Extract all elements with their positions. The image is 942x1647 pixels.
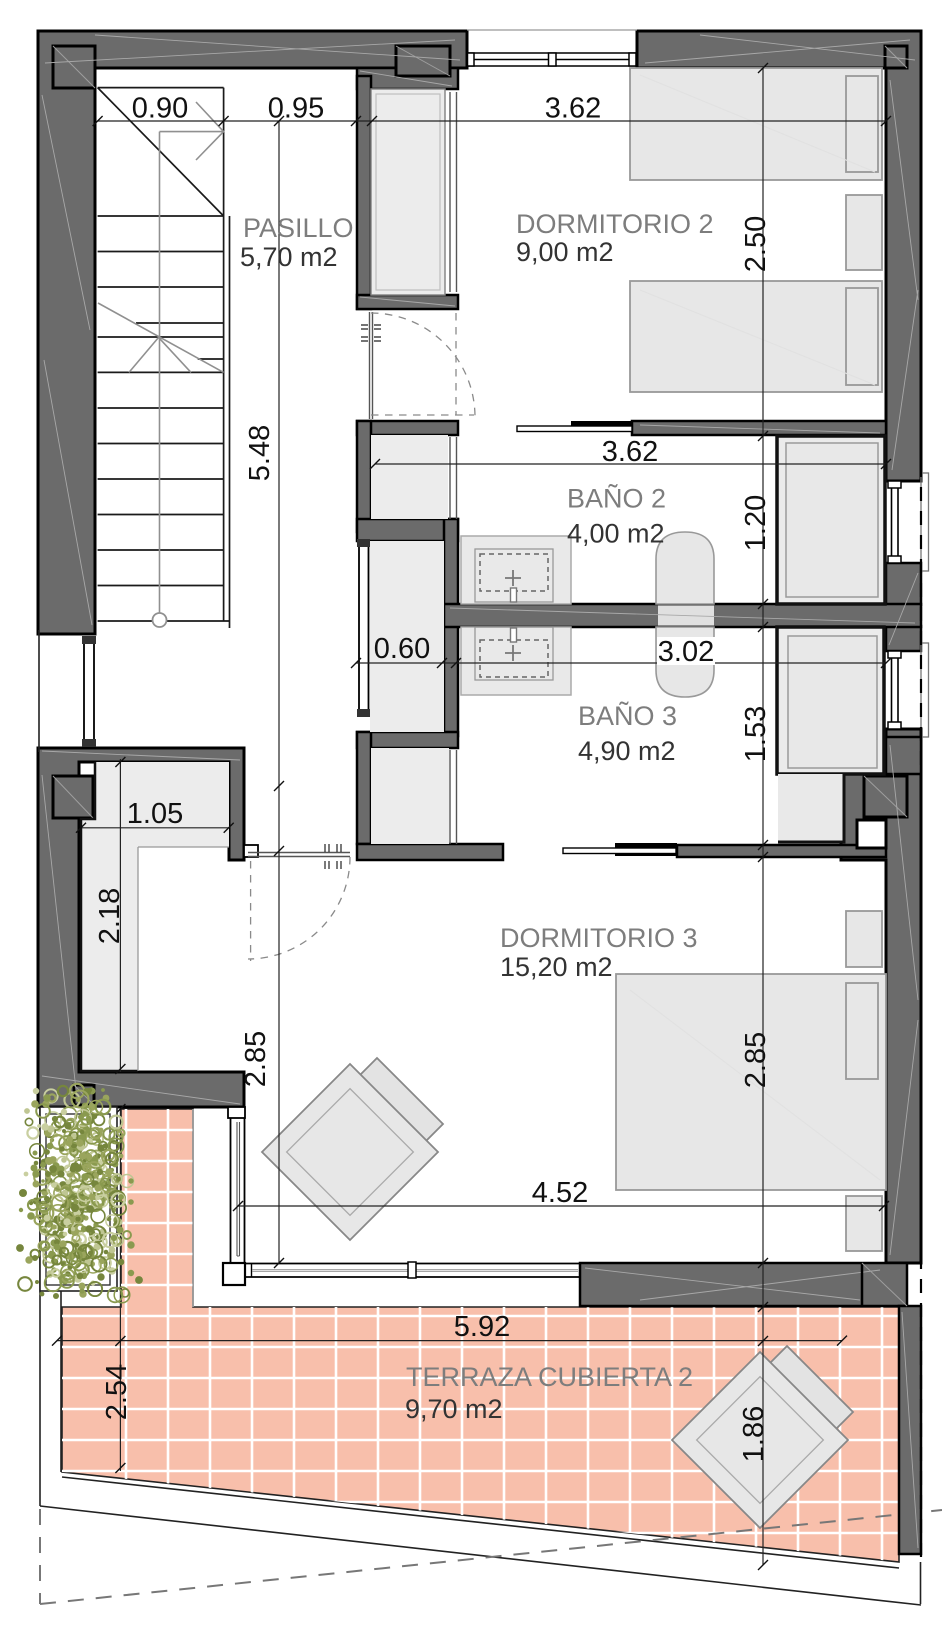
svg-text:2.50: 2.50 bbox=[740, 216, 772, 272]
svg-text:3.62: 3.62 bbox=[545, 93, 601, 125]
svg-text:4,90 m2: 4,90 m2 bbox=[578, 736, 676, 766]
svg-text:1.86: 1.86 bbox=[738, 1406, 770, 1462]
svg-text:2.54: 2.54 bbox=[101, 1364, 133, 1420]
svg-text:0.60: 0.60 bbox=[374, 633, 430, 665]
svg-text:9,00 m2: 9,00 m2 bbox=[516, 237, 614, 267]
svg-text:3.02: 3.02 bbox=[658, 636, 714, 668]
svg-text:3.62: 3.62 bbox=[602, 436, 658, 468]
svg-text:1.20: 1.20 bbox=[740, 495, 772, 551]
svg-text:2.18: 2.18 bbox=[94, 888, 126, 944]
svg-text:TERRAZA CUBIERTA 2: TERRAZA CUBIERTA 2 bbox=[406, 1362, 693, 1392]
svg-text:PASILLO: PASILLO bbox=[243, 213, 354, 243]
svg-text:0.95: 0.95 bbox=[268, 93, 324, 125]
svg-text:DORMITORIO 2: DORMITORIO 2 bbox=[516, 209, 714, 239]
svg-text:1.05: 1.05 bbox=[127, 798, 183, 830]
svg-text:4,00 m2: 4,00 m2 bbox=[567, 519, 665, 549]
svg-text:1.53: 1.53 bbox=[740, 706, 772, 762]
svg-text:BAÑO 3: BAÑO 3 bbox=[578, 700, 677, 731]
svg-text:9,70 m2: 9,70 m2 bbox=[405, 1394, 503, 1424]
svg-text:4.52: 4.52 bbox=[532, 1177, 588, 1209]
svg-text:2.85: 2.85 bbox=[240, 1031, 272, 1087]
svg-text:BAÑO 2: BAÑO 2 bbox=[567, 483, 666, 514]
svg-text:2.85: 2.85 bbox=[740, 1032, 772, 1088]
svg-text:5.48: 5.48 bbox=[244, 425, 276, 481]
svg-text:5.92: 5.92 bbox=[454, 1311, 510, 1343]
svg-text:DORMITORIO 3: DORMITORIO 3 bbox=[500, 923, 698, 953]
svg-text:0.90: 0.90 bbox=[132, 93, 188, 125]
svg-text:5,70 m2: 5,70 m2 bbox=[240, 242, 338, 272]
svg-text:15,20 m2: 15,20 m2 bbox=[500, 952, 613, 982]
